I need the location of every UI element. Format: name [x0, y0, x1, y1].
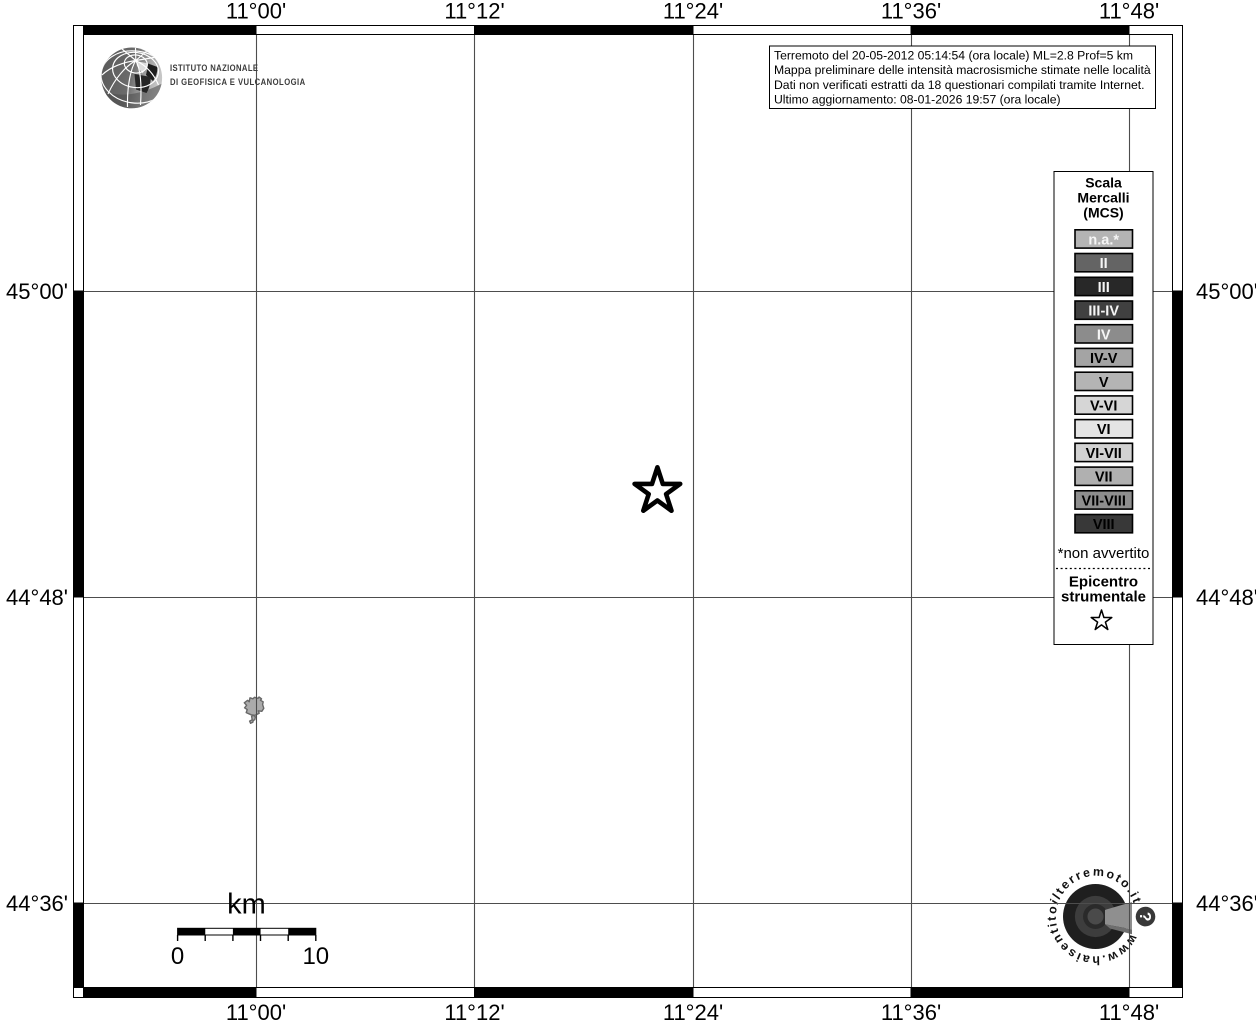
svg-text:III-IV: III-IV — [1088, 304, 1119, 320]
svg-text:IV-V: IV-V — [1090, 351, 1118, 367]
svg-text:Scala: Scala — [1085, 175, 1122, 191]
svg-text:VIII: VIII — [1093, 517, 1115, 533]
svg-text:11°48': 11°48' — [1099, 0, 1159, 24]
svg-text:VII-VIII: VII-VIII — [1082, 493, 1126, 509]
svg-text:10: 10 — [302, 943, 329, 970]
svg-text:VI: VI — [1097, 422, 1111, 438]
svg-text:(MCS): (MCS) — [1083, 205, 1123, 221]
svg-text:*non avvertito: *non avvertito — [1058, 545, 1150, 562]
svg-text:strumentale: strumentale — [1061, 589, 1146, 606]
svg-text:11°36': 11°36' — [881, 0, 941, 24]
svg-text:44°48': 44°48' — [6, 585, 68, 610]
svg-text:11°00': 11°00' — [226, 0, 286, 24]
svg-text:45°00': 45°00' — [6, 279, 68, 304]
svg-text:11°36': 11°36' — [881, 1000, 941, 1024]
svg-text:11°24': 11°24' — [663, 1000, 723, 1024]
svg-text:44°36': 44°36' — [1196, 891, 1256, 916]
svg-text:II: II — [1100, 256, 1108, 272]
svg-text:Dati non verificati estratti d: Dati non verificati estratti da 18 quest… — [774, 78, 1145, 92]
svg-text:44°48': 44°48' — [1196, 585, 1256, 610]
svg-text:Ultimo aggiornamento: 08-01-20: Ultimo aggiornamento: 08-01-2026 19:57 (… — [774, 93, 1061, 107]
svg-text:45°00': 45°00' — [1196, 279, 1256, 304]
svg-text:DI GEOFISICA E VULCANOLOGIA: DI GEOFISICA E VULCANOLOGIA — [170, 76, 306, 87]
svg-text:Terremoto del 20-05-2012 05:14: Terremoto del 20-05-2012 05:14:54 (ora l… — [774, 49, 1133, 63]
svg-text:km: km — [227, 889, 266, 921]
svg-text:V: V — [1099, 375, 1109, 391]
svg-text:11°12': 11°12' — [444, 1000, 504, 1024]
svg-text:11°12': 11°12' — [444, 0, 504, 24]
svg-text:11°48': 11°48' — [1099, 1000, 1159, 1024]
svg-text:V-VI: V-VI — [1090, 399, 1117, 415]
svg-text:44°36': 44°36' — [6, 891, 68, 916]
svg-text:ISTITUTO NAZIONALE: ISTITUTO NAZIONALE — [170, 62, 258, 73]
svg-text:Mercalli: Mercalli — [1077, 190, 1129, 206]
svg-text:Mappa preliminare delle intens: Mappa preliminare delle intensità macros… — [774, 63, 1151, 77]
svg-text:III: III — [1098, 280, 1110, 296]
svg-text:VII: VII — [1095, 470, 1113, 486]
svg-text:VI-VII: VI-VII — [1086, 446, 1122, 462]
svg-text:n.a.*: n.a.* — [1088, 232, 1119, 248]
svg-text:?: ? — [1136, 912, 1153, 922]
svg-text:11°00': 11°00' — [226, 1000, 286, 1024]
svg-text:11°24': 11°24' — [663, 0, 723, 24]
svg-text:0: 0 — [171, 943, 184, 970]
svg-text:IV: IV — [1097, 327, 1111, 343]
